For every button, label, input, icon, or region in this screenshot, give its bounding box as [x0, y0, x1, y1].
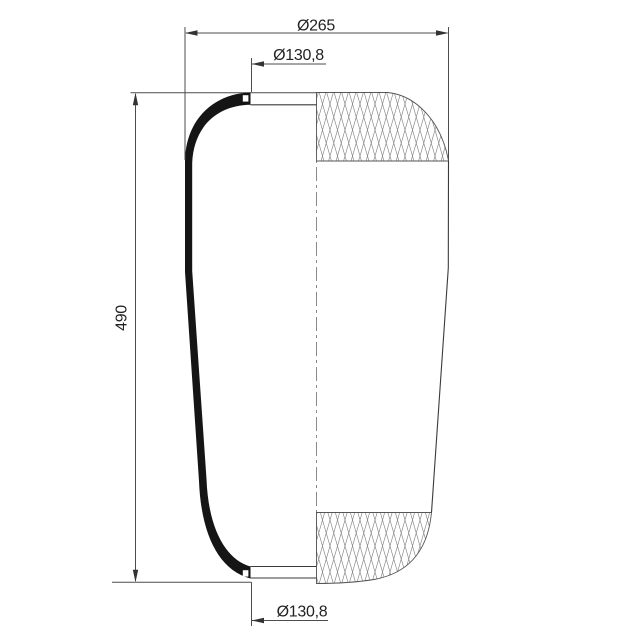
height-label: 490: [114, 305, 131, 331]
drawing-canvas: Ø265 Ø130,8 490 Ø130,8: [0, 0, 633, 641]
bottom-bead-notch: [243, 570, 249, 576]
overall-diameter-label: Ø265: [297, 18, 335, 35]
top-bead-notch: [243, 95, 249, 101]
technical-drawing: Ø265 Ø130,8 490 Ø130,8: [0, 0, 633, 641]
top-plate-diameter-label: Ø130,8: [273, 47, 324, 64]
bottom-plate-diameter-label: Ø130,8: [277, 604, 328, 621]
